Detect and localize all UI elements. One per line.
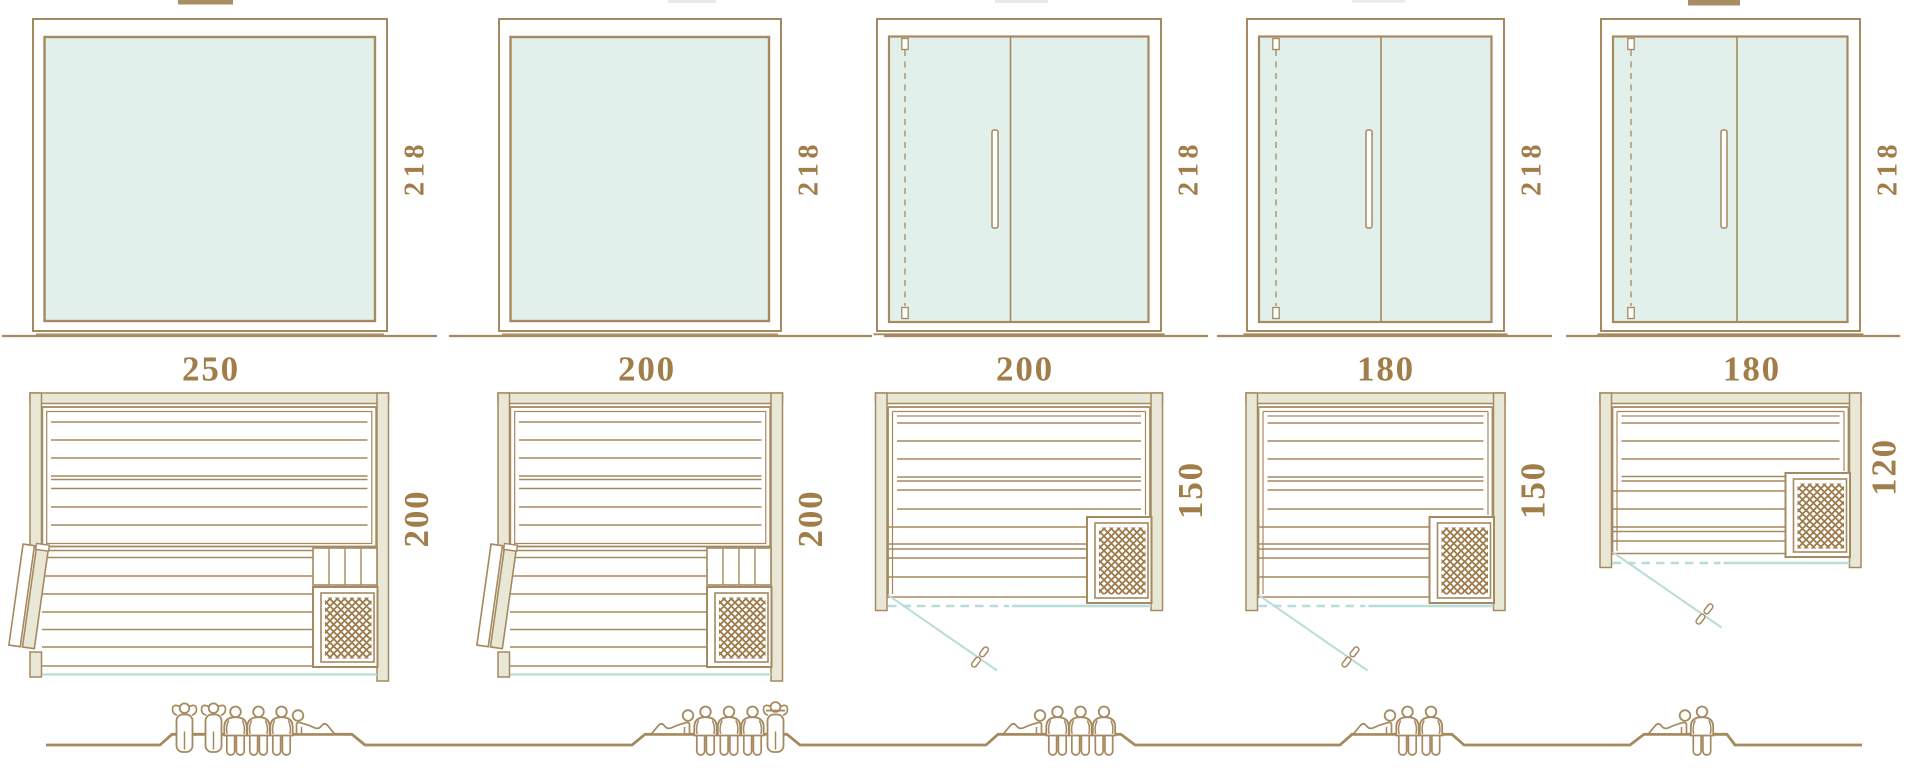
- svg-text:200: 200: [397, 490, 436, 548]
- svg-text:218: 218: [1873, 140, 1904, 196]
- svg-text:218: 218: [400, 140, 431, 196]
- svg-text:200: 200: [996, 350, 1054, 389]
- svg-text:218: 218: [1174, 140, 1205, 196]
- svg-text:218: 218: [1517, 140, 1548, 196]
- svg-text:150: 150: [1514, 461, 1553, 519]
- svg-text:150: 150: [1171, 461, 1210, 519]
- svg-text:180: 180: [1723, 350, 1781, 389]
- svg-text:200: 200: [618, 350, 676, 389]
- svg-text:218: 218: [794, 140, 825, 196]
- svg-text:180: 180: [1357, 350, 1415, 389]
- svg-text:250: 250: [182, 350, 240, 389]
- svg-text:120: 120: [1865, 438, 1904, 496]
- svg-text:200: 200: [791, 490, 830, 548]
